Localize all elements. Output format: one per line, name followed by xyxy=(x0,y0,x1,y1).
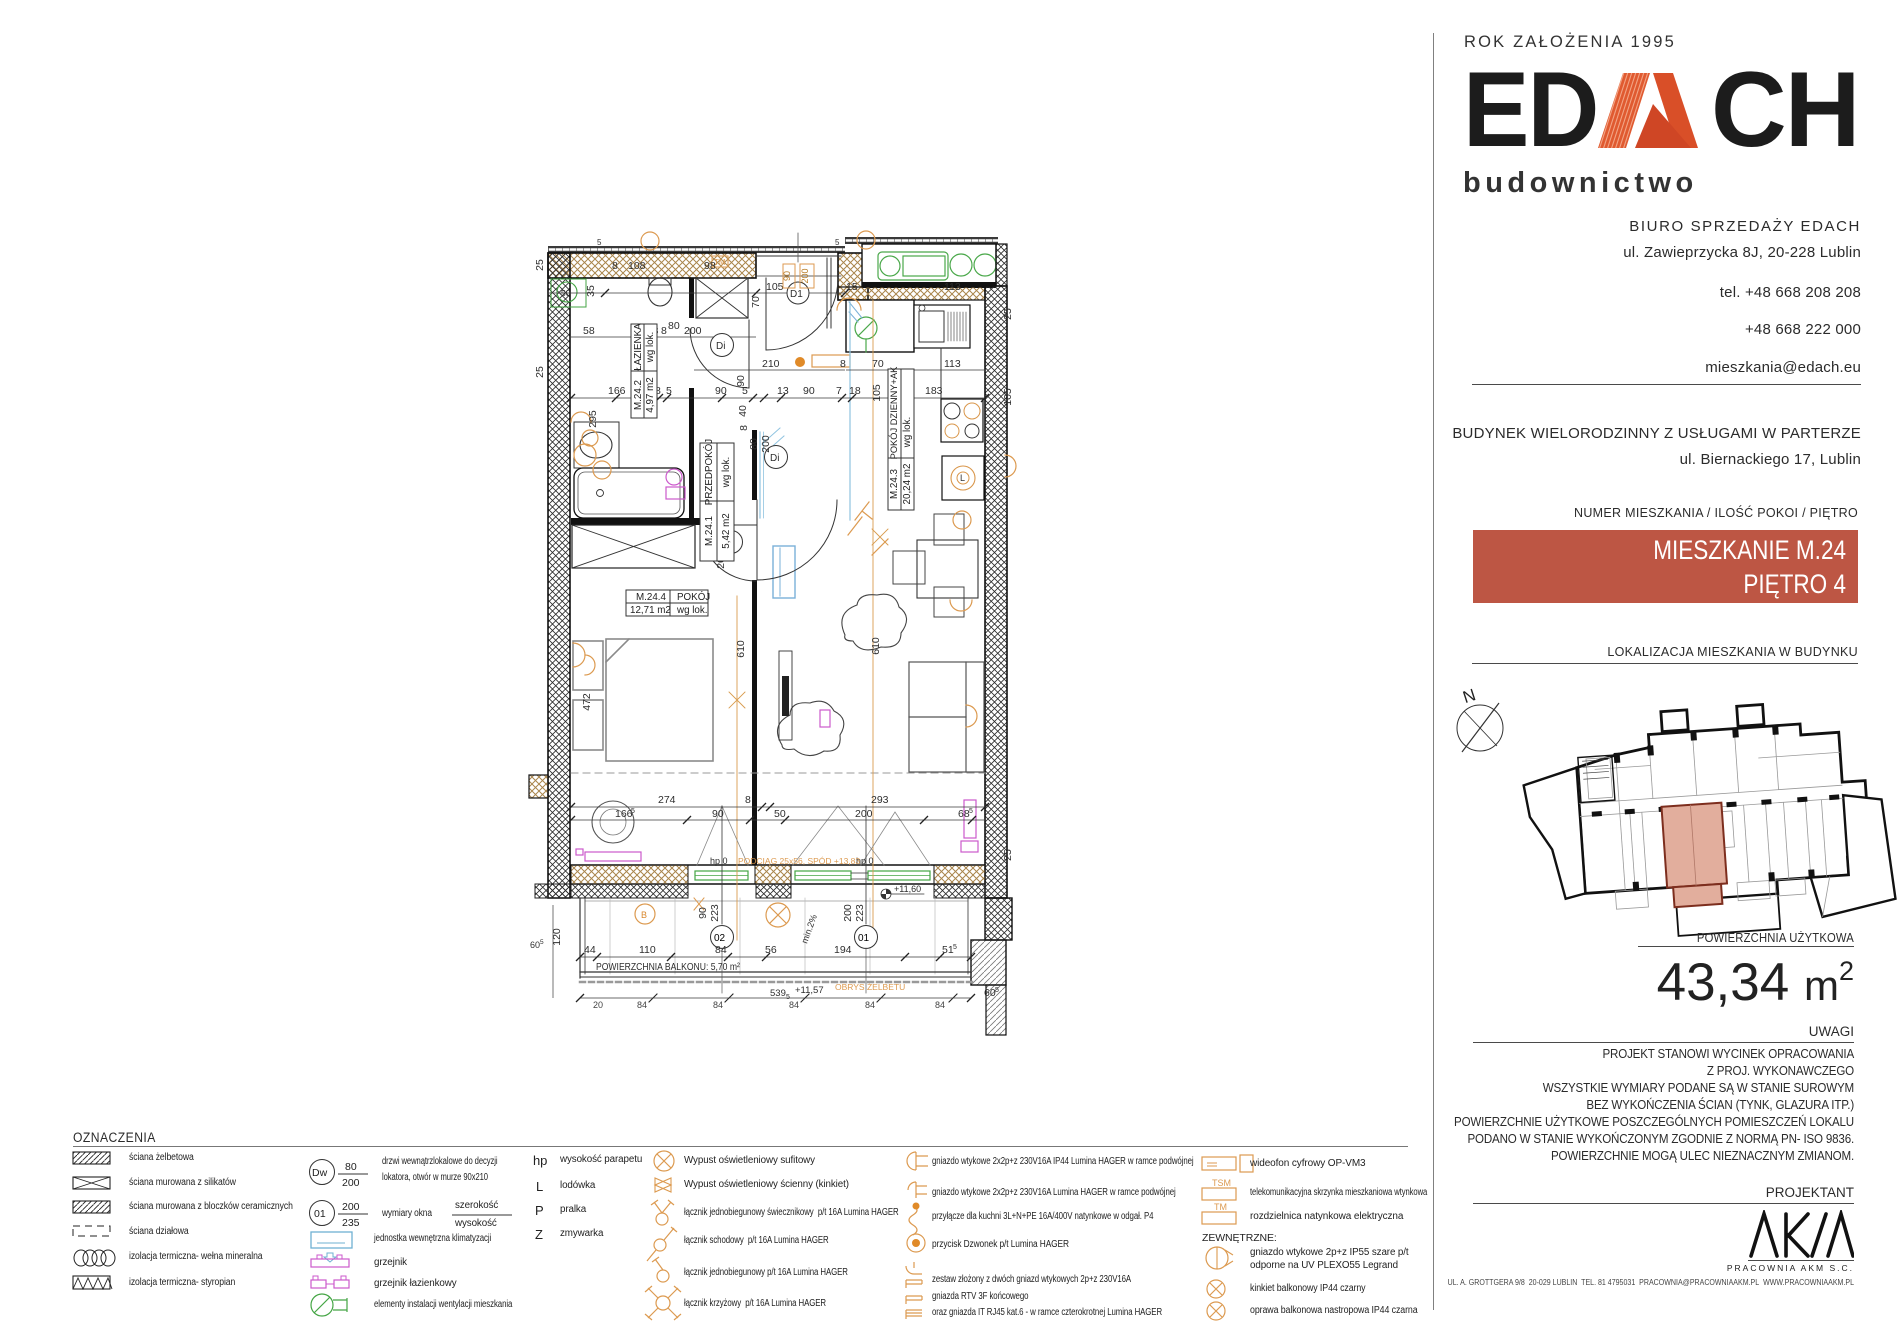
svg-text:35: 35 xyxy=(585,285,597,297)
svg-text:84: 84 xyxy=(637,1000,647,1010)
svg-text:7: 7 xyxy=(836,385,842,397)
svg-text:TM: TM xyxy=(1214,1202,1227,1212)
svg-text:01: 01 xyxy=(314,1208,326,1220)
svg-text:80: 80 xyxy=(668,320,680,332)
svg-text:M.24.4: M.24.4 xyxy=(636,592,667,603)
svg-text:194: 194 xyxy=(834,944,852,956)
svg-text:hp 0: hp 0 xyxy=(710,856,728,866)
svg-text:M.24.2: M.24.2 xyxy=(633,380,644,410)
svg-text:25: 25 xyxy=(1002,308,1014,320)
svg-text:113: 113 xyxy=(944,358,961,370)
svg-text:108: 108 xyxy=(628,260,646,272)
svg-text:8: 8 xyxy=(738,425,750,431)
svg-text:01: 01 xyxy=(858,933,870,944)
svg-text:200: 200 xyxy=(800,268,810,283)
svg-text:539: 539 xyxy=(770,988,786,999)
svg-text:84: 84 xyxy=(713,1000,723,1010)
svg-text:40: 40 xyxy=(737,405,749,417)
svg-text:200: 200 xyxy=(842,904,854,922)
svg-text:84: 84 xyxy=(715,944,727,956)
svg-text:200: 200 xyxy=(855,808,873,820)
svg-text:105: 105 xyxy=(766,281,784,293)
svg-text:5: 5 xyxy=(540,939,544,946)
svg-text:POWIERZCHNIA BALKONU: 5,70 m²: POWIERZCHNIA BALKONU: 5,70 m² xyxy=(596,961,741,973)
svg-text:25: 25 xyxy=(534,259,546,271)
svg-text:90: 90 xyxy=(735,375,747,387)
svg-text:13: 13 xyxy=(777,385,789,397)
svg-text:472: 472 xyxy=(581,693,593,711)
svg-text:TM: TM xyxy=(714,258,726,267)
svg-text:8: 8 xyxy=(840,358,846,370)
svg-text:8: 8 xyxy=(661,325,667,337)
svg-text:Di: Di xyxy=(770,453,779,464)
svg-text:80: 80 xyxy=(345,1161,357,1173)
svg-text:wg lok.: wg lok. xyxy=(721,457,732,489)
svg-text:18: 18 xyxy=(849,385,861,397)
svg-text:90: 90 xyxy=(712,808,724,820)
svg-text:PRZEDPOKÓJ: PRZEDPOKÓJ xyxy=(704,439,715,506)
svg-text:60: 60 xyxy=(530,940,540,950)
svg-text:610: 610 xyxy=(870,637,882,655)
svg-text:PODCIĄG 25x56, SPÓD +13,83: PODCIĄG 25x56, SPÓD +13,83 xyxy=(738,856,860,866)
svg-text:M.24.3: M.24.3 xyxy=(889,468,900,499)
svg-text:wg lok.: wg lok. xyxy=(676,605,708,616)
svg-text:200: 200 xyxy=(684,325,702,337)
svg-text:+11,57: +11,57 xyxy=(795,985,824,996)
svg-text:58: 58 xyxy=(583,325,595,337)
svg-text:12,71 m2: 12,71 m2 xyxy=(630,605,671,616)
svg-text:200: 200 xyxy=(342,1177,360,1189)
svg-text:20: 20 xyxy=(593,1000,603,1010)
svg-text:5: 5 xyxy=(953,944,957,951)
svg-text:90: 90 xyxy=(803,385,815,397)
svg-text:5: 5 xyxy=(597,238,602,247)
svg-text:200: 200 xyxy=(760,435,772,453)
svg-text:POKÓJ DZIENNY+AK: POKÓJ DZIENNY+AK xyxy=(889,366,899,460)
svg-text:D1: D1 xyxy=(790,289,803,300)
svg-text:56: 56 xyxy=(765,944,777,956)
svg-text:M.24.1: M.24.1 xyxy=(704,516,715,546)
svg-text:min.2%: min.2% xyxy=(799,913,819,945)
svg-text:5: 5 xyxy=(995,987,999,994)
svg-text:4,97 m2: 4,97 m2 xyxy=(645,377,656,412)
svg-text:120: 120 xyxy=(551,928,563,946)
svg-text:223: 223 xyxy=(709,904,721,922)
svg-text:295: 295 xyxy=(587,410,599,428)
svg-text:293: 293 xyxy=(871,794,889,806)
svg-text:200: 200 xyxy=(342,1201,360,1213)
svg-text:166: 166 xyxy=(608,385,626,397)
svg-text:wg lok.: wg lok. xyxy=(645,332,656,364)
svg-text:223: 223 xyxy=(854,904,866,922)
svg-text:+11,60: +11,60 xyxy=(894,884,921,894)
svg-text:02: 02 xyxy=(714,933,726,944)
svg-text:70: 70 xyxy=(750,296,762,308)
svg-text:50: 50 xyxy=(774,808,786,820)
svg-text:Di: Di xyxy=(716,341,725,352)
svg-text:210: 210 xyxy=(762,358,780,370)
svg-text:L: L xyxy=(960,473,965,483)
svg-text:274: 274 xyxy=(658,794,676,806)
svg-text:B: B xyxy=(641,910,647,920)
svg-text:113: 113 xyxy=(944,281,961,293)
svg-text:5: 5 xyxy=(631,808,635,815)
svg-text:5: 5 xyxy=(969,808,973,815)
svg-text:25: 25 xyxy=(1002,849,1014,861)
svg-text:70: 70 xyxy=(872,358,884,370)
svg-text:5: 5 xyxy=(666,385,672,397)
svg-text:110: 110 xyxy=(639,944,656,956)
svg-text:5,42 m2: 5,42 m2 xyxy=(721,513,732,548)
svg-text:84: 84 xyxy=(935,1000,945,1010)
svg-text:5: 5 xyxy=(835,238,840,247)
svg-text:N: N xyxy=(1460,685,1478,707)
svg-text:105: 105 xyxy=(1002,388,1014,406)
svg-text:ŁAZIENKA: ŁAZIENKA xyxy=(633,323,644,371)
svg-text:84: 84 xyxy=(865,1000,875,1010)
svg-text:8: 8 xyxy=(745,794,751,806)
svg-text:Dw: Dw xyxy=(312,1167,328,1179)
svg-text:15: 15 xyxy=(846,281,858,293)
svg-text:20,24 m2: 20,24 m2 xyxy=(902,464,913,505)
svg-text:8: 8 xyxy=(612,260,618,272)
svg-text:98: 98 xyxy=(704,260,716,272)
svg-text:TSM: TSM xyxy=(1212,1178,1231,1188)
svg-text:235: 235 xyxy=(342,1217,360,1229)
svg-text:80: 80 xyxy=(748,438,760,450)
svg-text:84: 84 xyxy=(789,1000,799,1010)
svg-text:44: 44 xyxy=(584,944,596,956)
svg-text:105: 105 xyxy=(871,384,883,402)
svg-text:610: 610 xyxy=(735,640,747,658)
svg-text:OBRYS ŻELBETU: OBRYS ŻELBETU xyxy=(835,982,905,992)
svg-text:25: 25 xyxy=(534,366,546,378)
svg-text:183: 183 xyxy=(925,385,943,397)
svg-text:POKÓJ: POKÓJ xyxy=(677,592,710,603)
svg-text:90: 90 xyxy=(697,907,709,919)
svg-text:wg lok.: wg lok. xyxy=(902,417,913,449)
svg-text:90: 90 xyxy=(715,385,727,397)
